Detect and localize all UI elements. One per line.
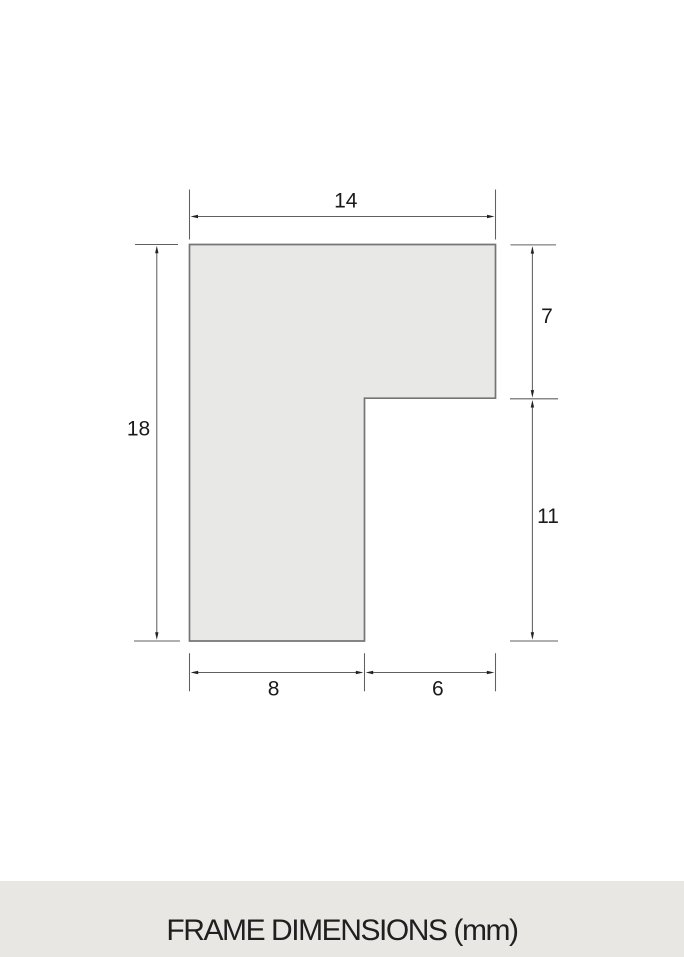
svg-text:11: 11 bbox=[537, 505, 559, 528]
svg-text:6: 6 bbox=[432, 678, 444, 701]
svg-text:18: 18 bbox=[127, 417, 150, 440]
svg-text:14: 14 bbox=[334, 189, 358, 212]
svg-text:7: 7 bbox=[541, 305, 553, 328]
svg-text:8: 8 bbox=[268, 678, 280, 701]
